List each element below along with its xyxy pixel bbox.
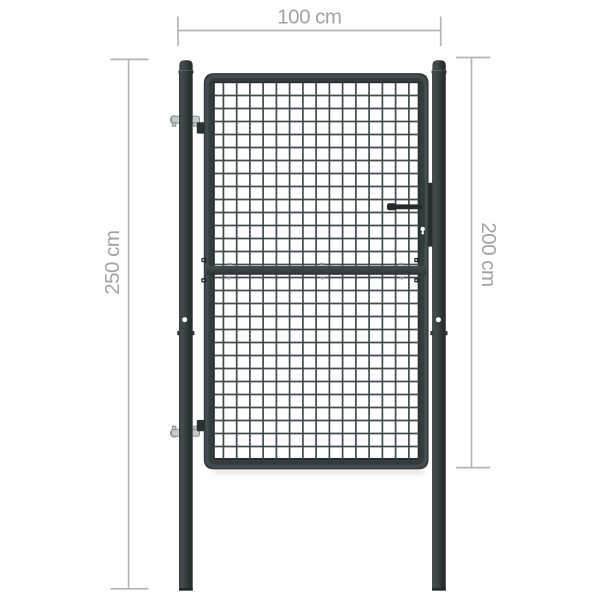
svg-text:100 cm: 100 cm [277,6,341,29]
svg-text:250 cm: 250 cm [101,231,124,295]
svg-text:200 cm: 200 cm [477,222,500,286]
